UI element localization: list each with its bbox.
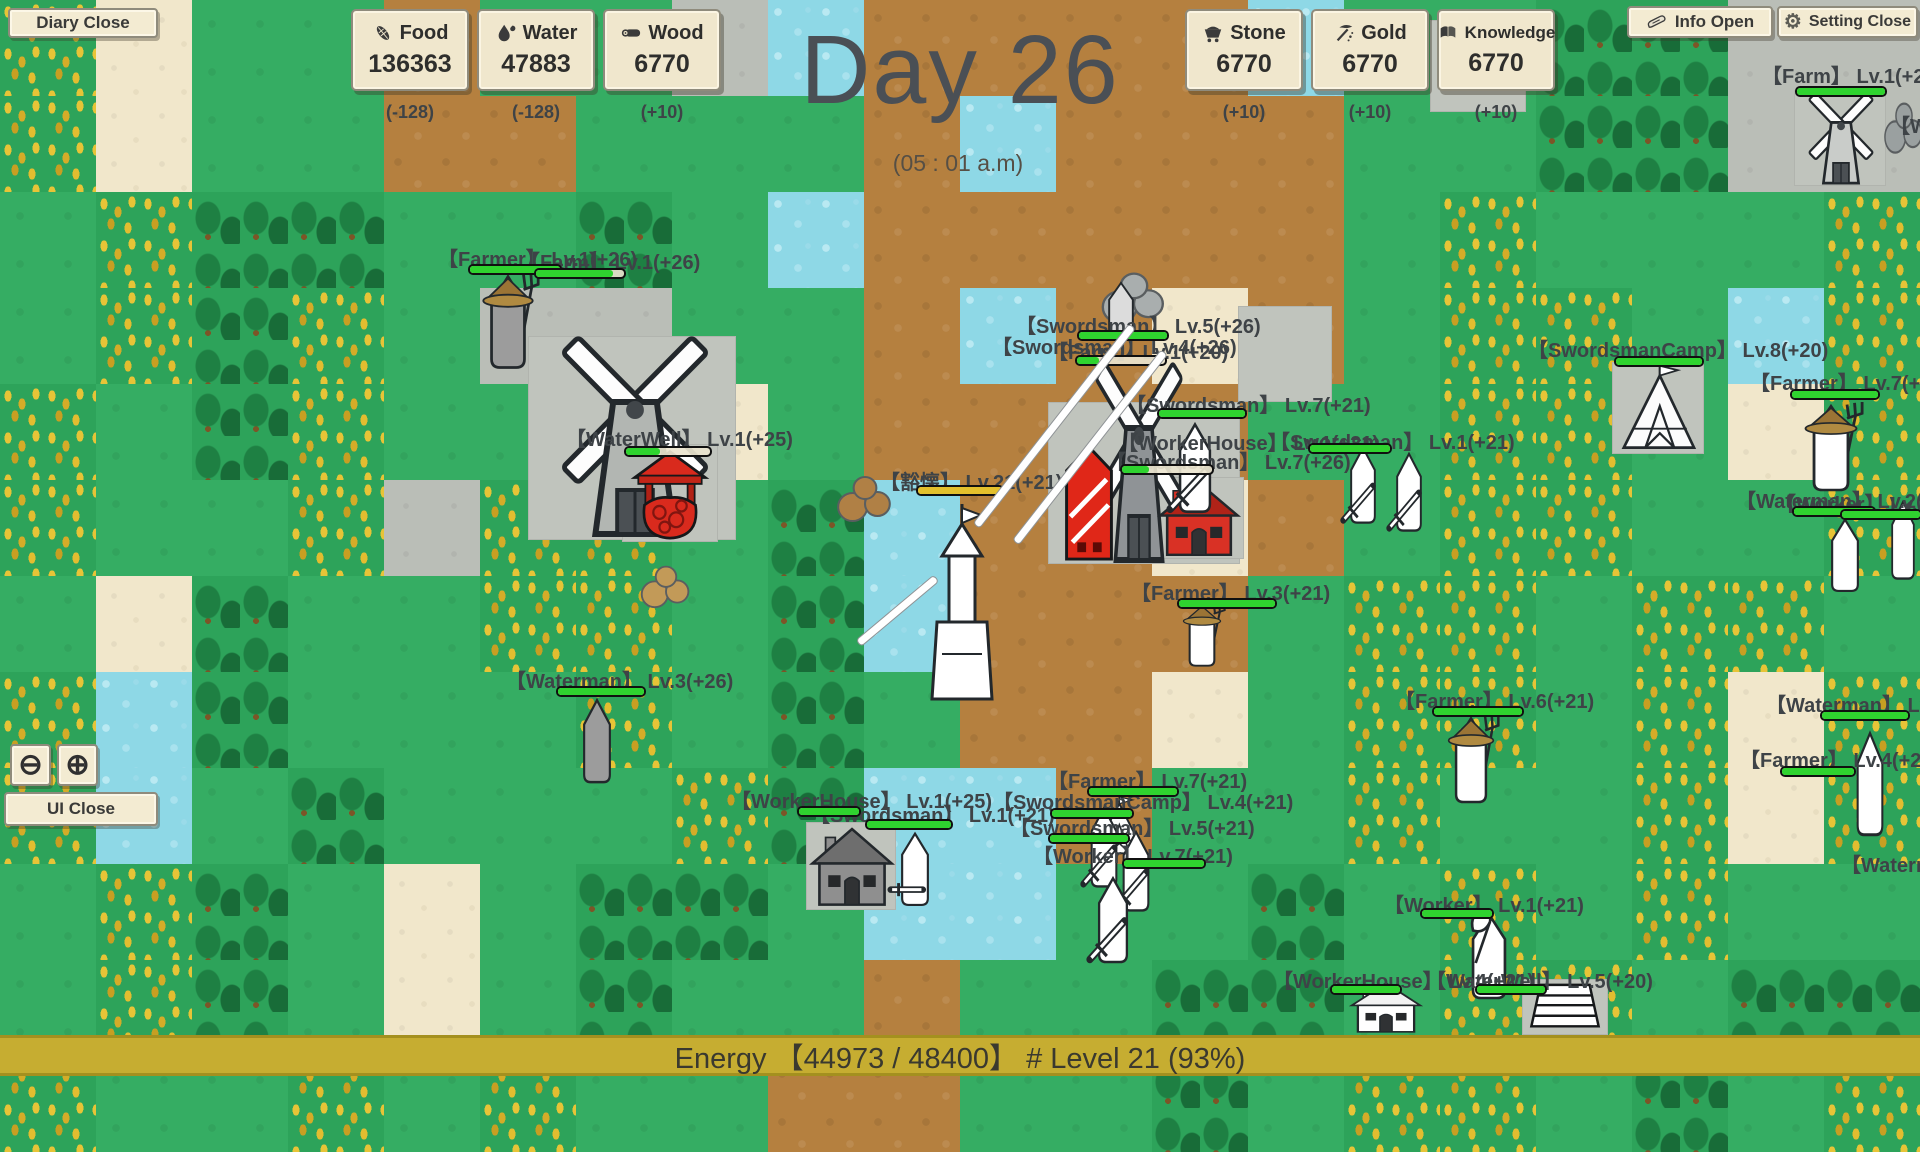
resource-value: 47883: [479, 50, 593, 79]
health-bar: [1432, 706, 1524, 717]
farmer-unit[interactable]: [476, 272, 540, 374]
resource-row-right: Stone6770(+10)Gold6770(+10)Knowledge6770…: [1185, 9, 1555, 123]
health-bar: [1177, 598, 1277, 609]
resource-panel-gold: Gold6770(+10): [1311, 9, 1429, 123]
unit-label: 【Waterman】 Lv.1(+20): [1841, 849, 1920, 878]
diary-close-button[interactable]: Diary Close: [8, 8, 158, 38]
log-icon: [620, 22, 642, 44]
health-bar: [1840, 509, 1920, 520]
day-counter: Day 26: [800, 14, 1119, 126]
health-bar: [916, 485, 1004, 496]
resource-panel-knowledge: Knowledge6770(+10): [1437, 9, 1555, 123]
health-bar: [1420, 908, 1494, 919]
unit-label: 【Worker】 Lv.: [1890, 110, 1920, 139]
health-bar: [1087, 786, 1179, 797]
health-bar: [1122, 858, 1206, 869]
unit-label: 【Farm】 Lv.1(+20): [1762, 60, 1920, 89]
resource-name: Knowledge: [1465, 23, 1556, 43]
resource-value: 6770: [1313, 50, 1427, 79]
resource-delta: (+10): [1311, 102, 1429, 123]
resource-name: Food: [400, 22, 449, 45]
info-open-label: Info Open: [1675, 12, 1754, 32]
worker-house[interactable]: [808, 824, 896, 908]
gear-icon: ⚙: [1784, 12, 1802, 32]
swordsman-unit[interactable]: [1386, 450, 1432, 536]
setting-close-button[interactable]: ⚙ Setting Close: [1777, 6, 1918, 38]
resource-value: 6770: [1187, 50, 1301, 79]
swordsman-unit[interactable]: [890, 830, 940, 910]
resource-value: 6770: [1439, 49, 1553, 78]
zoom-in-button[interactable]: ⊕: [57, 744, 98, 786]
health-bar: [556, 686, 646, 697]
health-bar: [865, 819, 953, 830]
swordsman-camp-tent[interactable]: [1613, 363, 1703, 453]
energy-label: Energy 【44973 / 48400】 # Level 21 (93%): [675, 1035, 1246, 1077]
ui-close-button[interactable]: UI Close: [4, 792, 158, 826]
health-bar: [1820, 710, 1910, 721]
zoom-out-button[interactable]: ⊖: [10, 744, 51, 786]
resource-box: Gold6770: [1311, 9, 1429, 91]
resource-name: Gold: [1361, 22, 1407, 45]
health-bar: [797, 806, 861, 817]
worker-unit[interactable]: [1820, 516, 1870, 596]
resource-name: Wood: [648, 22, 703, 45]
health-bar: [624, 446, 712, 457]
resource-delta: (+10): [1185, 102, 1303, 123]
resource-value: 6770: [605, 50, 719, 79]
health-bar: [1308, 443, 1392, 454]
clock-label: (05 : 01 a.m): [893, 150, 1023, 177]
resource-panel-wood: Wood6770(+10): [603, 9, 721, 123]
zoom-out-icon: ⊖: [18, 751, 42, 780]
health-bar: [1330, 984, 1402, 995]
resource-delta: (-128): [351, 102, 469, 123]
swordsman-unit[interactable]: [1086, 874, 1140, 968]
water-well[interactable]: [626, 448, 714, 540]
pickaxe-icon: [1333, 22, 1355, 44]
minecart-icon: [1202, 22, 1224, 44]
health-bar: [1790, 389, 1880, 400]
dirt-mound: [638, 562, 694, 610]
resource-panel-food: Food136363(-128): [351, 9, 469, 123]
health-bar: [1475, 984, 1547, 995]
health-bar: [1050, 808, 1134, 819]
resource-box: Water47883: [477, 9, 595, 91]
resource-panel-stone: Stone6770(+10): [1185, 9, 1303, 123]
energy-level-bar: Energy 【44973 / 48400】 # Level 21 (93%): [0, 1035, 1920, 1076]
scroll-icon: [1646, 14, 1668, 30]
health-bar: [1614, 356, 1704, 367]
hero-tower[interactable]: [924, 502, 1000, 702]
resource-panel-water: Water47883(-128): [477, 9, 595, 123]
corn-icon: [372, 22, 394, 44]
zoom-in-icon: ⊕: [65, 751, 89, 780]
resource-delta: (+10): [1437, 102, 1555, 123]
resource-name: Water: [523, 22, 578, 45]
health-bar: [1120, 464, 1214, 475]
resource-box: Knowledge6770: [1437, 9, 1555, 91]
health-bar: [534, 268, 626, 279]
resource-value: 136363: [353, 50, 467, 79]
resource-box: Food136363: [351, 9, 469, 91]
farm-windmill[interactable]: [1797, 93, 1885, 185]
health-bar: [1048, 833, 1130, 844]
resource-row-left: Food136363(-128)Water47883(-128)Wood6770…: [351, 9, 721, 123]
health-bar: [1780, 766, 1856, 777]
resource-box: Stone6770: [1185, 9, 1303, 91]
resource-delta: (-128): [477, 102, 595, 123]
waterman-unit[interactable]: [572, 696, 622, 788]
setting-close-label: Setting Close: [1809, 13, 1911, 31]
farmer-unit[interactable]: [1798, 402, 1864, 496]
water-drop-icon: [495, 22, 517, 44]
farmer-unit[interactable]: [1442, 714, 1500, 808]
health-bar: [1795, 86, 1887, 97]
resource-delta: (+10): [603, 102, 721, 123]
health-bar: [1157, 408, 1247, 419]
resource-name: Stone: [1230, 22, 1286, 45]
info-open-button[interactable]: Info Open: [1627, 6, 1773, 38]
book-icon: [1437, 22, 1459, 44]
resource-box: Wood6770: [603, 9, 721, 91]
farmer-unit[interactable]: [1178, 602, 1226, 670]
